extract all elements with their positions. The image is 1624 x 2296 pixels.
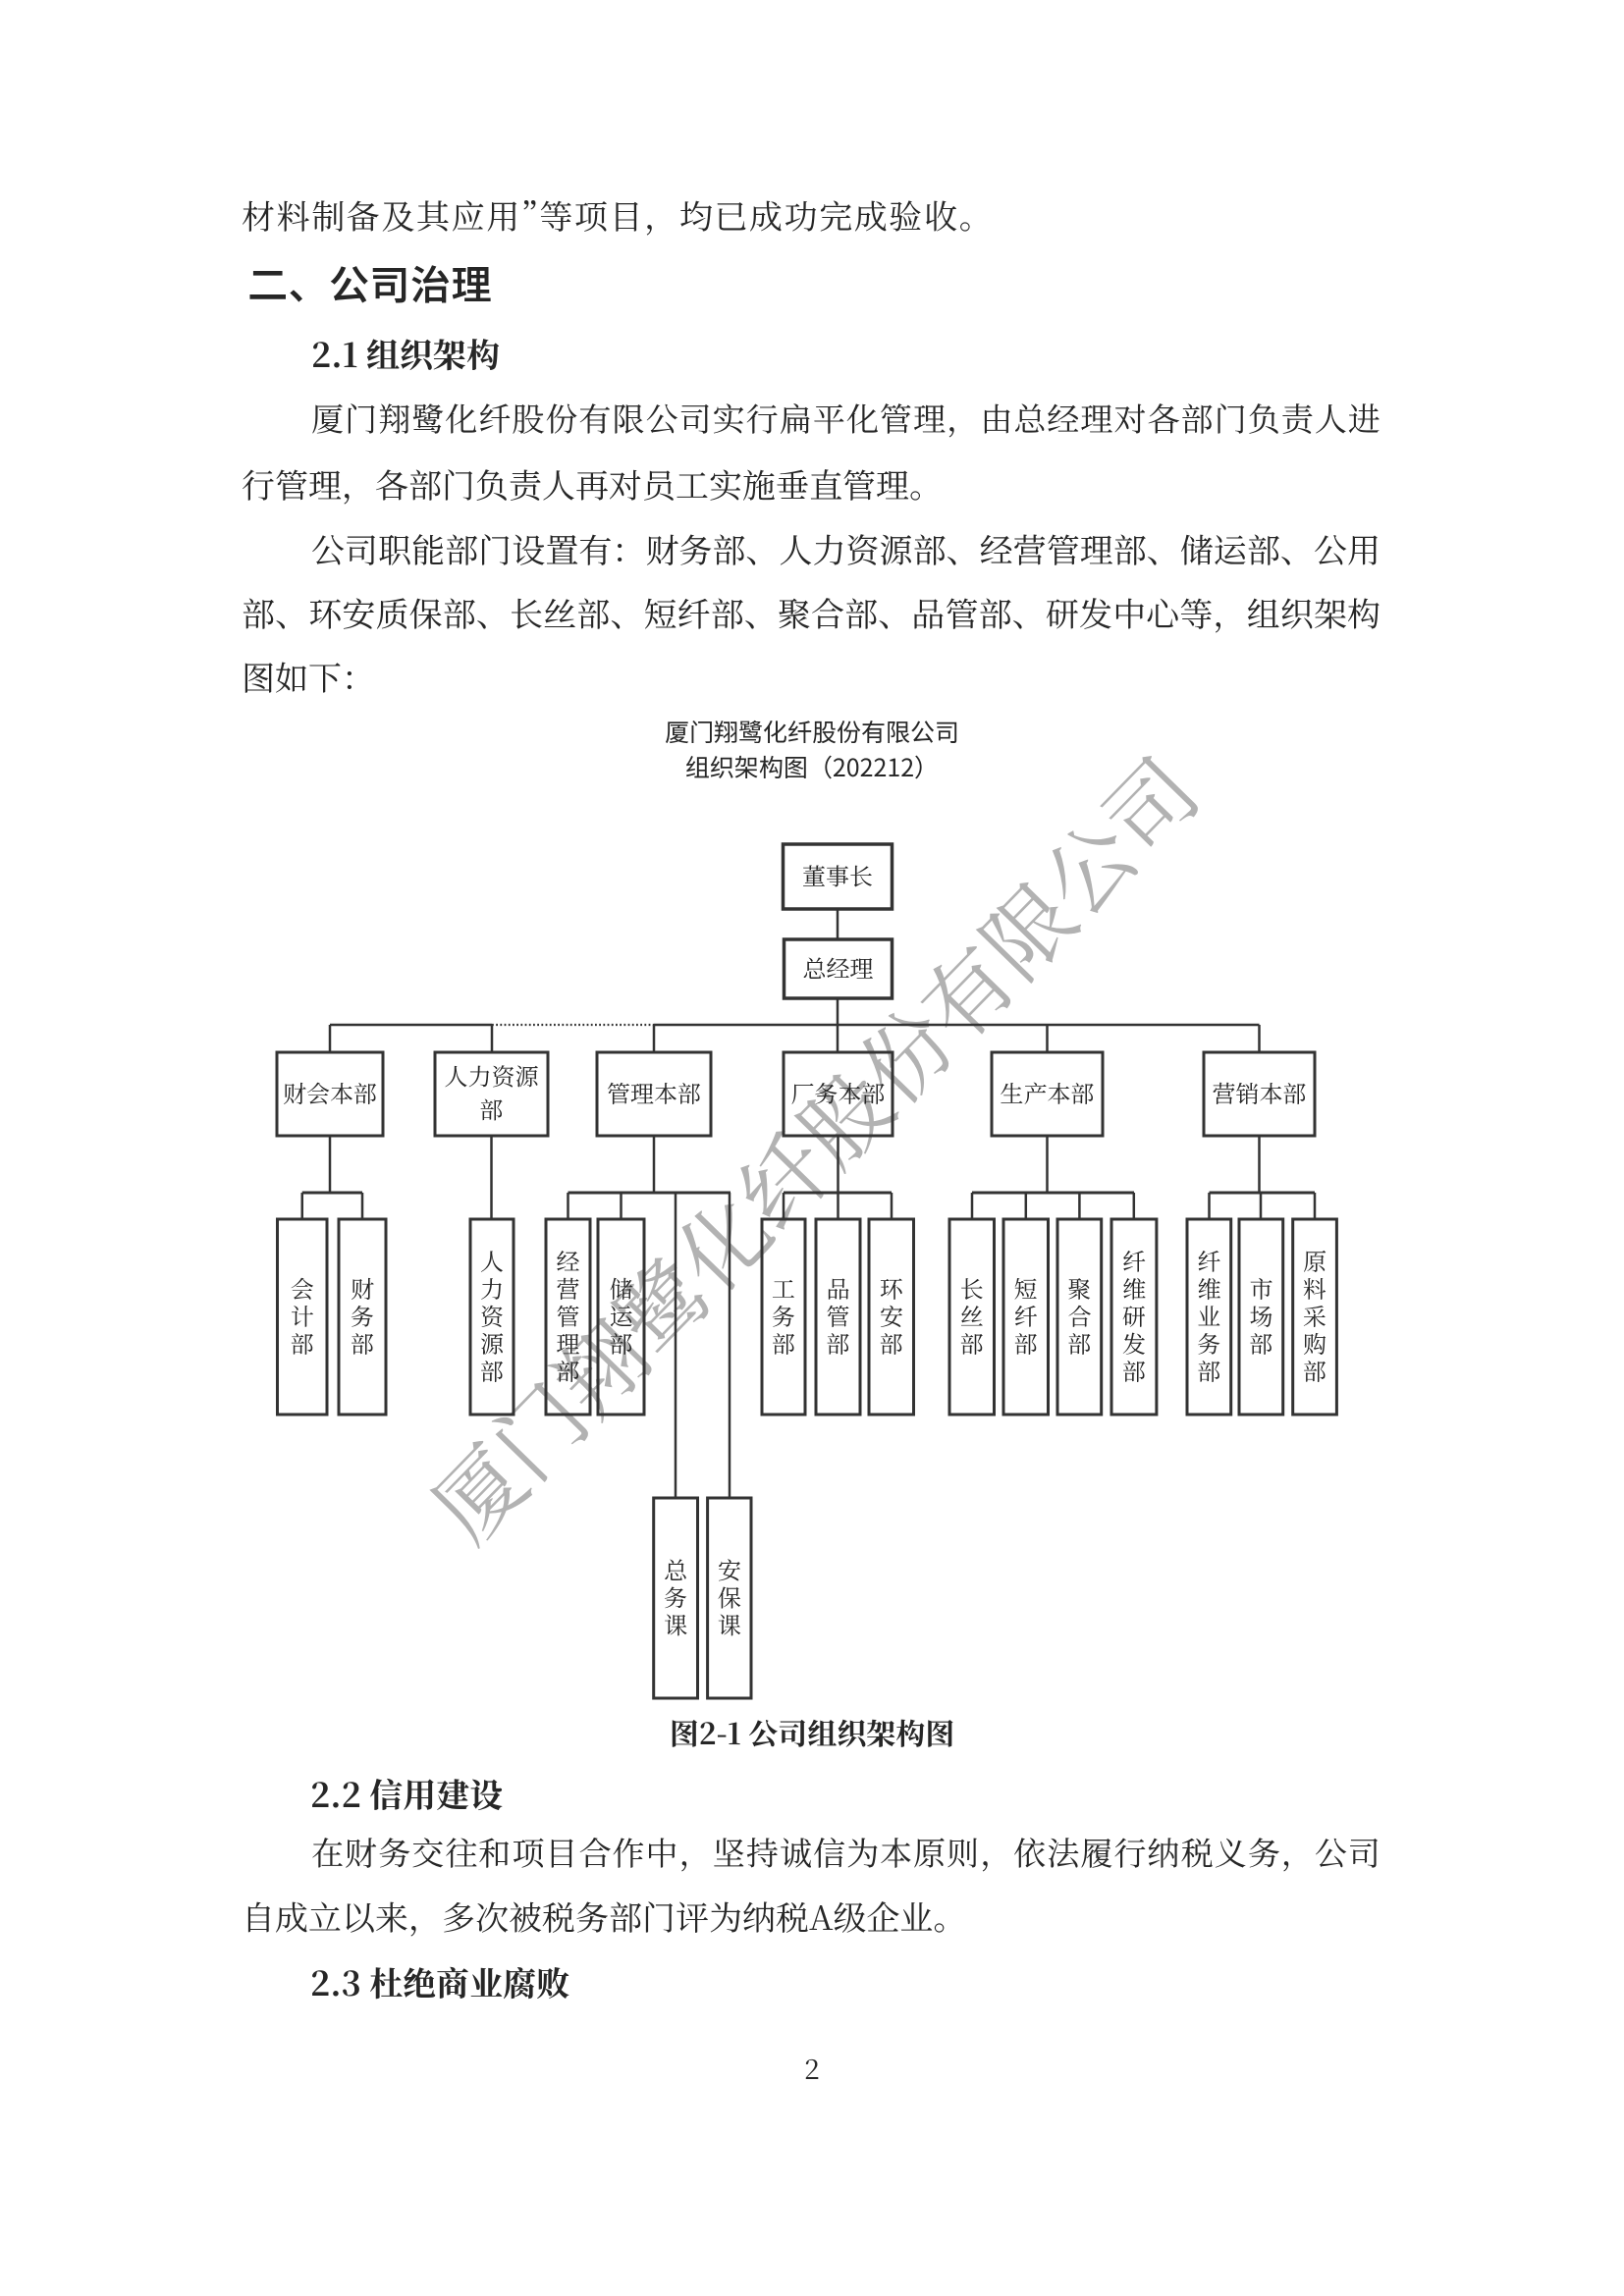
svg-text:总经理: 总经理 (803, 950, 874, 985)
svg-text:营销本部: 营销本部 (1213, 1075, 1307, 1109)
svg-text:部: 部 (1122, 1353, 1146, 1387)
svg-text:课: 课 (718, 1607, 741, 1641)
svg-text:财会本部: 财会本部 (283, 1075, 377, 1109)
svg-text:课: 课 (664, 1607, 687, 1641)
svg-text:部: 部 (1014, 1325, 1038, 1360)
svg-text:部: 部 (1197, 1353, 1220, 1387)
svg-text:部: 部 (480, 1353, 504, 1387)
svg-text:部: 部 (610, 1325, 633, 1360)
svg-text:部: 部 (291, 1325, 314, 1360)
svg-text:部: 部 (827, 1325, 850, 1360)
svg-text:部: 部 (557, 1353, 580, 1387)
svg-text:生产本部: 生产本部 (1001, 1075, 1095, 1109)
svg-text:厂务本部: 厂务本部 (791, 1075, 886, 1109)
svg-text:部: 部 (1303, 1353, 1326, 1387)
svg-text:部: 部 (880, 1325, 903, 1360)
svg-text:董事长: 董事长 (802, 858, 873, 892)
svg-text:部: 部 (772, 1325, 795, 1360)
svg-text:管理本部: 管理本部 (607, 1075, 701, 1109)
svg-text:部: 部 (1249, 1325, 1272, 1360)
svg-text:部: 部 (1067, 1325, 1091, 1360)
svg-text:部: 部 (960, 1325, 984, 1360)
svg-text:部: 部 (480, 1092, 504, 1126)
svg-text:人力资源: 人力资源 (445, 1058, 539, 1093)
svg-text:部: 部 (351, 1325, 374, 1360)
